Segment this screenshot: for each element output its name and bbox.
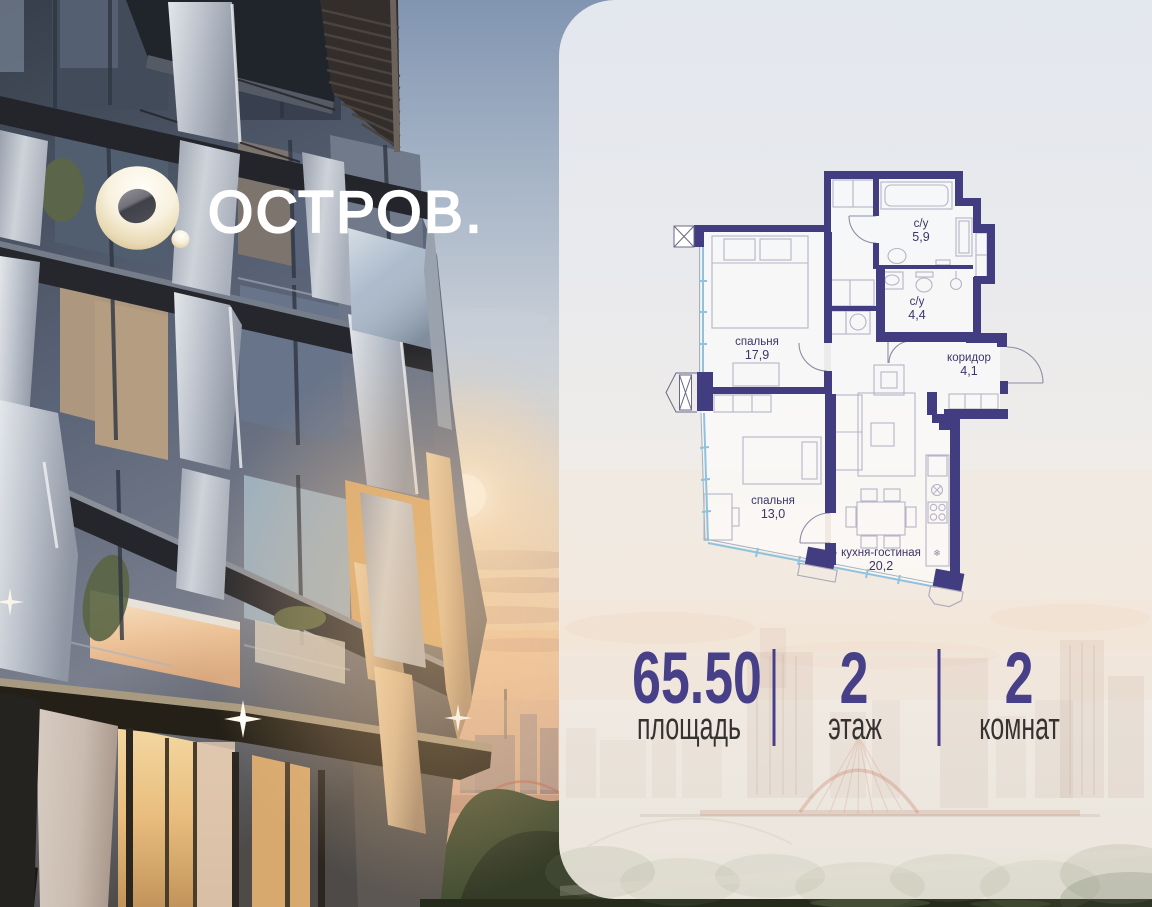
svg-text:❄: ❄: [933, 548, 941, 558]
svg-text:кухня-гостиная: кухня-гостиная: [841, 547, 921, 559]
svg-text:комнат: комнат: [979, 705, 1060, 748]
svg-text:13,0: 13,0: [761, 507, 785, 521]
svg-text:спальня: спальня: [751, 495, 795, 507]
svg-text:спальня: спальня: [735, 336, 779, 348]
svg-text:с/у: с/у: [910, 296, 925, 308]
svg-text:4,1: 4,1: [960, 364, 977, 378]
svg-text:площадь: площадь: [637, 705, 741, 748]
svg-text:ОСТРОВ.: ОСТРОВ.: [208, 180, 484, 245]
svg-text:5,9: 5,9: [912, 230, 929, 244]
svg-text:20,2: 20,2: [869, 559, 893, 573]
svg-text:этаж: этаж: [828, 705, 882, 748]
svg-text:с/у: с/у: [914, 218, 929, 230]
svg-text:17,9: 17,9: [745, 348, 769, 362]
svg-text:коридор: коридор: [947, 352, 991, 364]
svg-text:4,4: 4,4: [908, 308, 925, 322]
